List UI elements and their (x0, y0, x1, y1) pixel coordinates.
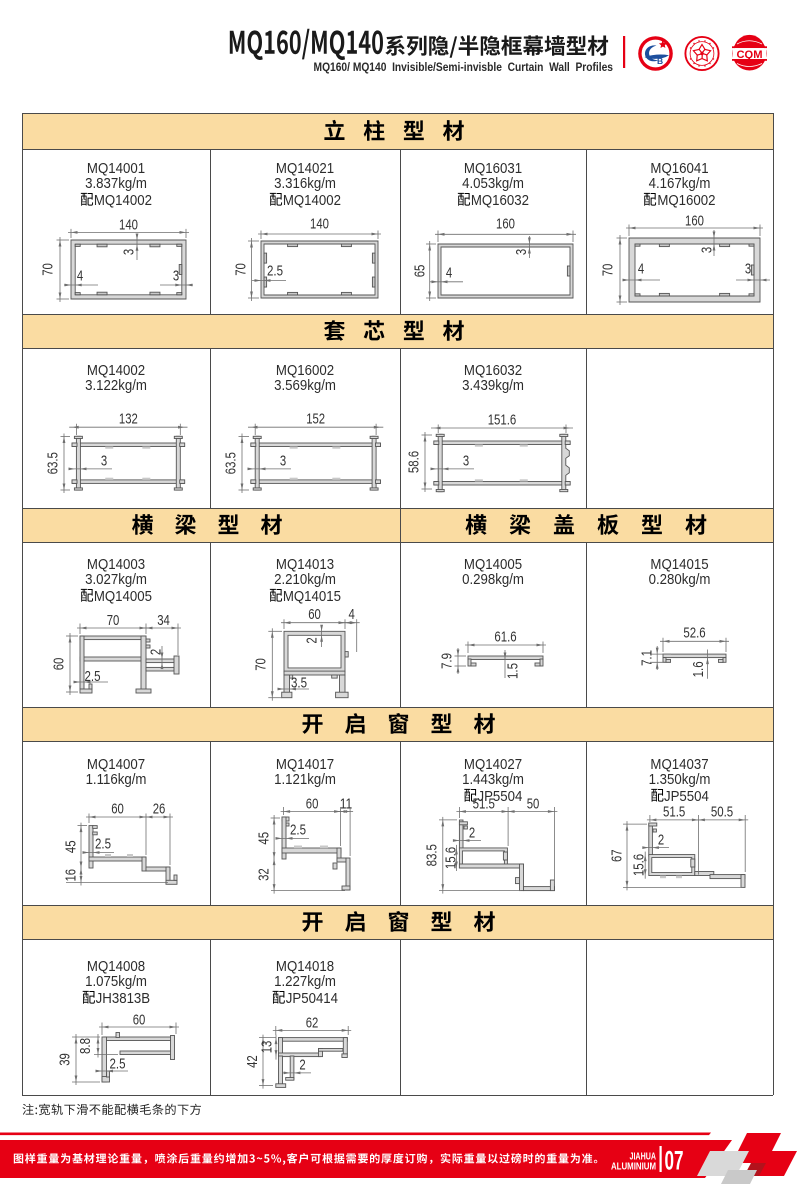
svg-text:42: 42 (244, 1055, 261, 1068)
svg-text:3: 3 (745, 260, 751, 277)
svg-text:15.6: 15.6 (442, 847, 459, 869)
svg-text:2.5: 2.5 (290, 821, 306, 838)
svg-text:B: B (657, 56, 663, 66)
svg-text:7.1: 7.1 (638, 650, 655, 666)
svg-text:65: 65 (411, 265, 428, 278)
svg-text:16: 16 (62, 869, 79, 882)
svg-text:JIAHUA: JIAHUA (630, 1151, 657, 1163)
svg-text:63.5: 63.5 (222, 452, 239, 474)
svg-text:3: 3 (698, 247, 715, 253)
svg-text:4: 4 (446, 264, 452, 281)
svg-text:70: 70 (252, 658, 269, 671)
svg-text:39: 39 (56, 1053, 73, 1066)
svg-text:32: 32 (255, 868, 272, 881)
svg-text:4: 4 (348, 606, 354, 623)
svg-text:151.6: 151.6 (488, 411, 517, 428)
svg-text:60: 60 (306, 795, 319, 812)
svg-text:70: 70 (107, 612, 120, 629)
svg-text:51.5: 51.5 (663, 803, 685, 820)
svg-text:ALUMINIUM: ALUMINIUM (611, 1161, 656, 1173)
svg-text:62: 62 (306, 1014, 319, 1031)
svg-text:152: 152 (306, 410, 325, 427)
svg-text:160: 160 (685, 212, 704, 229)
svg-text:2: 2 (469, 824, 475, 841)
svg-text:45: 45 (255, 832, 272, 845)
svg-text:07: 07 (665, 1146, 684, 1176)
svg-text:CQM: CQM (737, 49, 763, 61)
svg-text:70: 70 (599, 264, 616, 277)
svg-text:45: 45 (62, 841, 79, 854)
svg-text:4: 4 (638, 260, 644, 277)
svg-text:83.5: 83.5 (423, 844, 440, 866)
svg-text:3: 3 (120, 249, 137, 255)
svg-text:8.8: 8.8 (77, 1038, 94, 1054)
svg-text:4: 4 (77, 267, 83, 284)
svg-text:60: 60 (133, 1011, 146, 1028)
svg-text:2: 2 (303, 637, 320, 643)
svg-text:2.5: 2.5 (110, 1055, 126, 1072)
svg-text:11: 11 (340, 795, 353, 812)
svg-text:13: 13 (258, 1041, 275, 1054)
svg-text:60: 60 (50, 658, 67, 671)
svg-text:58.6: 58.6 (405, 451, 422, 473)
svg-text:2.5: 2.5 (85, 668, 101, 685)
svg-text:1.5: 1.5 (504, 663, 521, 679)
svg-text:52.6: 52.6 (683, 624, 705, 641)
svg-text:15.6: 15.6 (630, 854, 647, 876)
svg-text:61.6: 61.6 (494, 628, 516, 645)
svg-text:60: 60 (308, 606, 321, 623)
svg-text:3: 3 (173, 267, 179, 284)
svg-text:26: 26 (153, 800, 166, 817)
svg-text:3: 3 (280, 452, 286, 469)
svg-text:2.5: 2.5 (95, 835, 111, 852)
svg-text:160: 160 (496, 215, 515, 232)
svg-text:2: 2 (658, 831, 664, 848)
svg-text:132: 132 (119, 410, 138, 427)
svg-text:70: 70 (232, 263, 249, 276)
svg-text:50.5: 50.5 (711, 803, 733, 820)
svg-text:3: 3 (463, 452, 469, 469)
svg-text:3.5: 3.5 (291, 674, 307, 691)
svg-text:7.9: 7.9 (438, 653, 455, 669)
svg-text:2: 2 (147, 649, 164, 655)
svg-text:67: 67 (608, 849, 625, 862)
svg-text:2.5: 2.5 (267, 262, 283, 279)
svg-text:140: 140 (119, 216, 138, 233)
svg-text:1.6: 1.6 (690, 661, 707, 677)
svg-text:140: 140 (310, 215, 329, 232)
svg-text:3: 3 (513, 249, 530, 255)
svg-text:63.5: 63.5 (44, 452, 61, 474)
svg-text:2: 2 (299, 1056, 305, 1073)
svg-text:3: 3 (101, 452, 107, 469)
svg-text:60: 60 (111, 800, 124, 817)
svg-text:70: 70 (39, 263, 56, 276)
svg-text:34: 34 (157, 612, 170, 629)
